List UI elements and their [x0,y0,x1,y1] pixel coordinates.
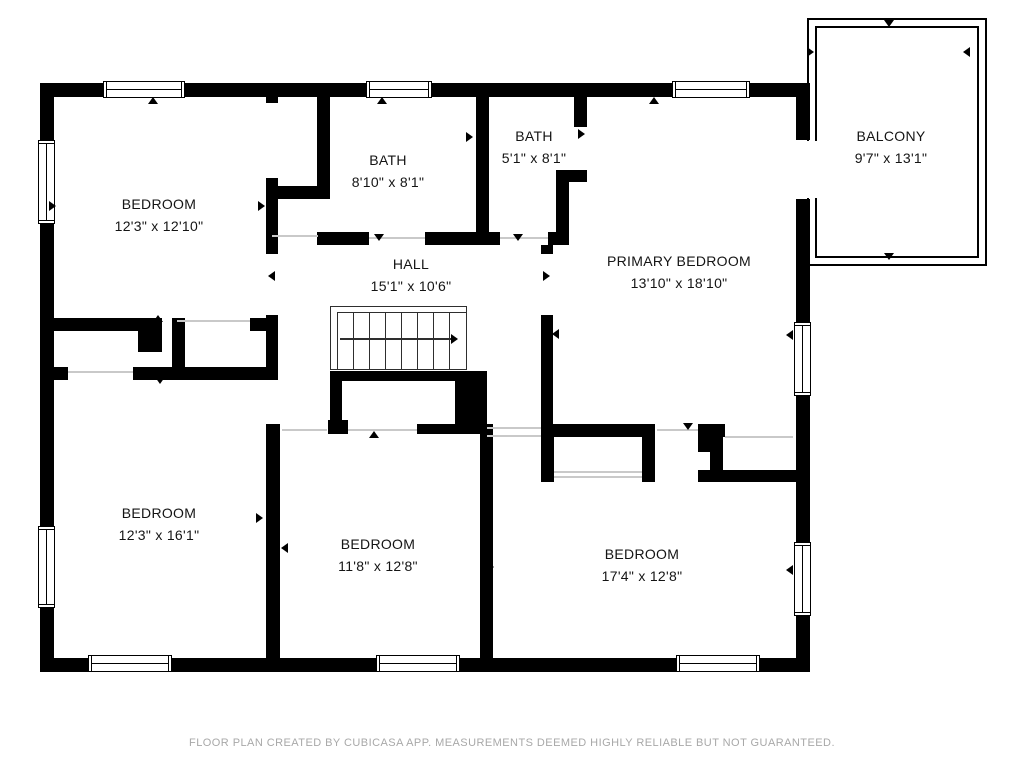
room-name: BEDROOM [602,544,683,566]
room-label-bath-1: BATH 8'10" x 8'1" [352,150,425,193]
window [794,322,811,396]
door-swing-arrow [552,329,559,339]
door-opening [500,237,548,239]
door-swing-arrow [649,97,659,104]
wall-segment [54,318,138,331]
room-dimensions: 15'1" x 10'6" [371,276,452,298]
wall-segment [250,318,278,331]
window [672,81,750,98]
room-label-primary-bedroom: PRIMARY BEDROOM 13'10" x 18'10" [607,251,751,294]
wall-segment [541,245,553,254]
door-swing-arrow [148,97,158,104]
door-opening [348,429,417,431]
wall-segment [317,232,369,245]
room-dimensions: 11'8" x 12'8" [338,556,418,578]
door-opening [177,320,250,322]
wall-segment [541,424,554,482]
window [376,655,460,672]
wall-segment [54,367,68,380]
floor-plan: BEDROOM 12'3" x 12'10" BATH 8'10" x 8'1"… [0,0,1024,768]
room-dimensions: 12'3" x 12'10" [115,216,204,238]
wall-segment [642,424,655,482]
wall-segment [476,232,500,245]
wall-segment [698,470,710,482]
door-swing-arrow [963,47,970,57]
room-label-bedroom-bottom-middle: BEDROOM 11'8" x 12'8" [338,534,418,577]
room-name: BEDROOM [115,194,204,216]
door-swing-arrow [884,253,894,260]
door-swing-arrow [683,423,693,430]
door-swing-arrow [786,330,793,340]
door-swing-arrow [513,234,523,241]
wall-segment [266,424,280,435]
door-opening [554,471,642,473]
wall-segment [266,186,330,199]
door-swing-arrow [268,271,275,281]
room-label-bedroom-top-left: BEDROOM 12'3" x 12'10" [115,194,204,237]
wall-segment [796,83,810,140]
room-dimensions: 5'1" x 8'1" [502,148,567,170]
window [676,655,760,672]
room-label-bedroom-bottom-left: BEDROOM 12'3" x 16'1" [119,503,200,546]
stairs-tread [417,312,418,370]
wall-segment [698,424,710,452]
wall-segment [330,371,487,381]
wall-segment [480,424,493,672]
wall-segment [710,424,723,482]
window [366,81,432,98]
room-label-balcony: BALCONY 9'7" x 13'1" [855,126,928,169]
stairs-tread [353,312,354,370]
door-swing-arrow [466,132,473,142]
wall-segment [266,424,280,672]
wall-segment [556,170,587,182]
wall-segment [574,97,587,127]
door-opening [554,476,642,478]
door-swing-arrow [884,20,894,27]
door-swing-arrow [377,97,387,104]
room-name: BATH [502,126,567,148]
door-swing-arrow [318,132,325,142]
door-swing-arrow [543,271,550,281]
door-opening [487,435,541,437]
door-swing-arrow [369,431,379,438]
door-swing-arrow [281,543,288,553]
room-dimensions: 12'3" x 16'1" [119,525,200,547]
door-opening [272,235,318,237]
door-swing-arrow [155,377,165,384]
wall-segment [541,424,655,437]
door-swing-arrow [153,315,163,322]
room-label-bedroom-bottom-right: BEDROOM 17'4" x 12'8" [602,544,683,587]
room-label-hall: HALL 15'1" x 10'6" [371,254,452,297]
stairs-inner-line [337,312,467,370]
stairs-tread [385,312,386,370]
room-dimensions: 8'10" x 8'1" [352,172,425,194]
stairs-tread [369,312,370,370]
wall-segment [266,97,278,103]
stairs-direction-line [340,338,452,340]
door-swing-arrow [487,562,494,572]
door-opening [68,371,133,373]
room-name: PRIMARY BEDROOM [607,251,751,273]
door-opening [487,427,541,429]
balcony-door-opening [795,141,819,198]
wall-segment [317,97,330,195]
window [88,655,172,672]
wall-segment [328,420,348,434]
door-opening [725,436,793,438]
wall-segment [476,97,489,237]
room-dimensions: 13'10" x 18'10" [607,273,751,295]
door-swing-arrow [374,234,384,241]
room-name: BEDROOM [119,503,200,525]
door-swing-arrow [786,565,793,575]
door-swing-arrow [258,201,265,211]
window [38,140,55,224]
room-name: BEDROOM [338,534,418,556]
door-swing-arrow [807,47,814,57]
stairs-tread [433,312,434,370]
room-name: BATH [352,150,425,172]
window [38,526,55,608]
room-name: HALL [371,254,452,276]
wall-segment [138,318,162,352]
door-swing-arrow [578,129,585,139]
disclaimer-text: FLOOR PLAN CREATED BY CUBICASA APP. MEAS… [0,737,1024,749]
room-dimensions: 9'7" x 13'1" [855,148,928,170]
room-dimensions: 17'4" x 12'8" [602,566,683,588]
window [794,542,811,616]
room-label-bath-2: BATH 5'1" x 8'1" [502,126,567,169]
wall-segment [548,232,569,245]
stairs-tread [401,312,402,370]
stairs-tread [449,312,450,370]
room-name: BALCONY [855,126,928,148]
door-opening [282,429,327,431]
stairs-direction-arrow [451,334,458,344]
door-swing-arrow [256,513,263,523]
window [103,81,185,98]
wall-segment [417,424,487,434]
door-swing-arrow [49,201,56,211]
